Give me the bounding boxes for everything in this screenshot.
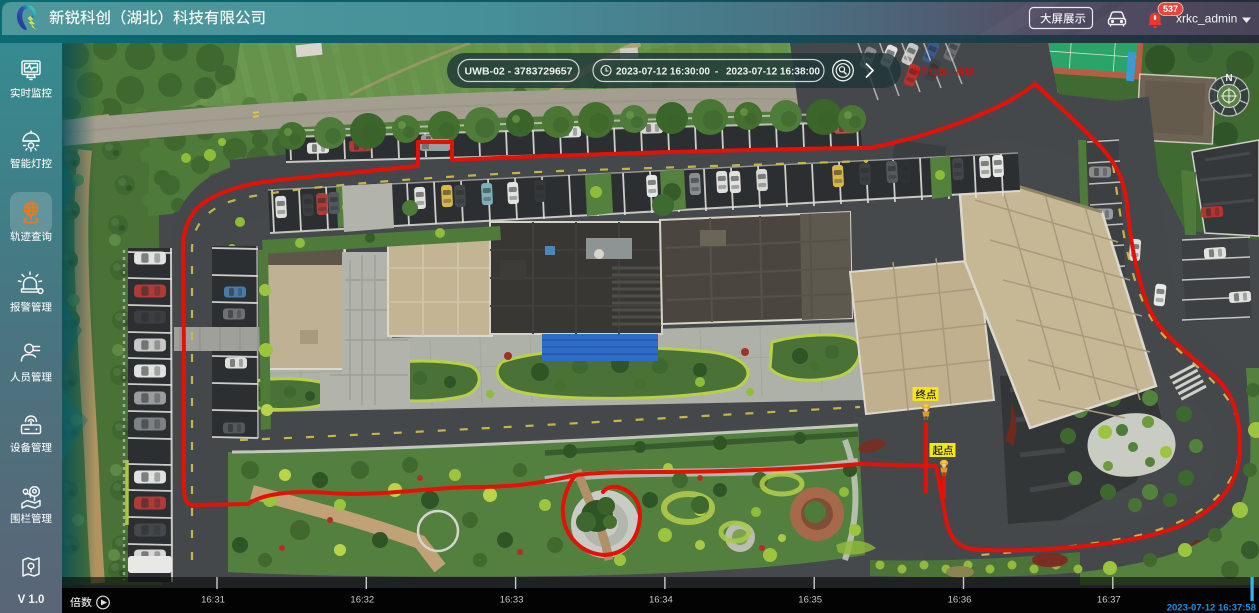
svg-text:16:36: 16:36 (948, 595, 972, 606)
svg-text:16:37: 16:37 (1097, 595, 1121, 606)
svg-text:2023-07-12 16:38:00: 2023-07-12 16:38:00 (726, 67, 820, 78)
svg-text:2023-07-12 16:37:58: 2023-07-12 16:37:58 (1167, 603, 1256, 613)
svg-text:2023-07-12 16:30:00: 2023-07-12 16:30:00 (616, 67, 710, 78)
svg-text:16:34: 16:34 (649, 595, 673, 606)
svg-text:16:32: 16:32 (350, 595, 374, 606)
svg-text:16:31: 16:31 (201, 595, 225, 606)
svg-text:16:35: 16:35 (798, 595, 822, 606)
svg-text:16:33: 16:33 (500, 595, 524, 606)
svg-text:N: N (1225, 73, 1232, 84)
svg-text:-: - (715, 67, 718, 78)
svg-text:V 1.0: V 1.0 (18, 594, 45, 606)
svg-text:xrkc_admin: xrkc_admin (1176, 12, 1237, 26)
svg-text:UWB-02 - 3783729657: UWB-02 - 3783729657 (465, 66, 573, 78)
